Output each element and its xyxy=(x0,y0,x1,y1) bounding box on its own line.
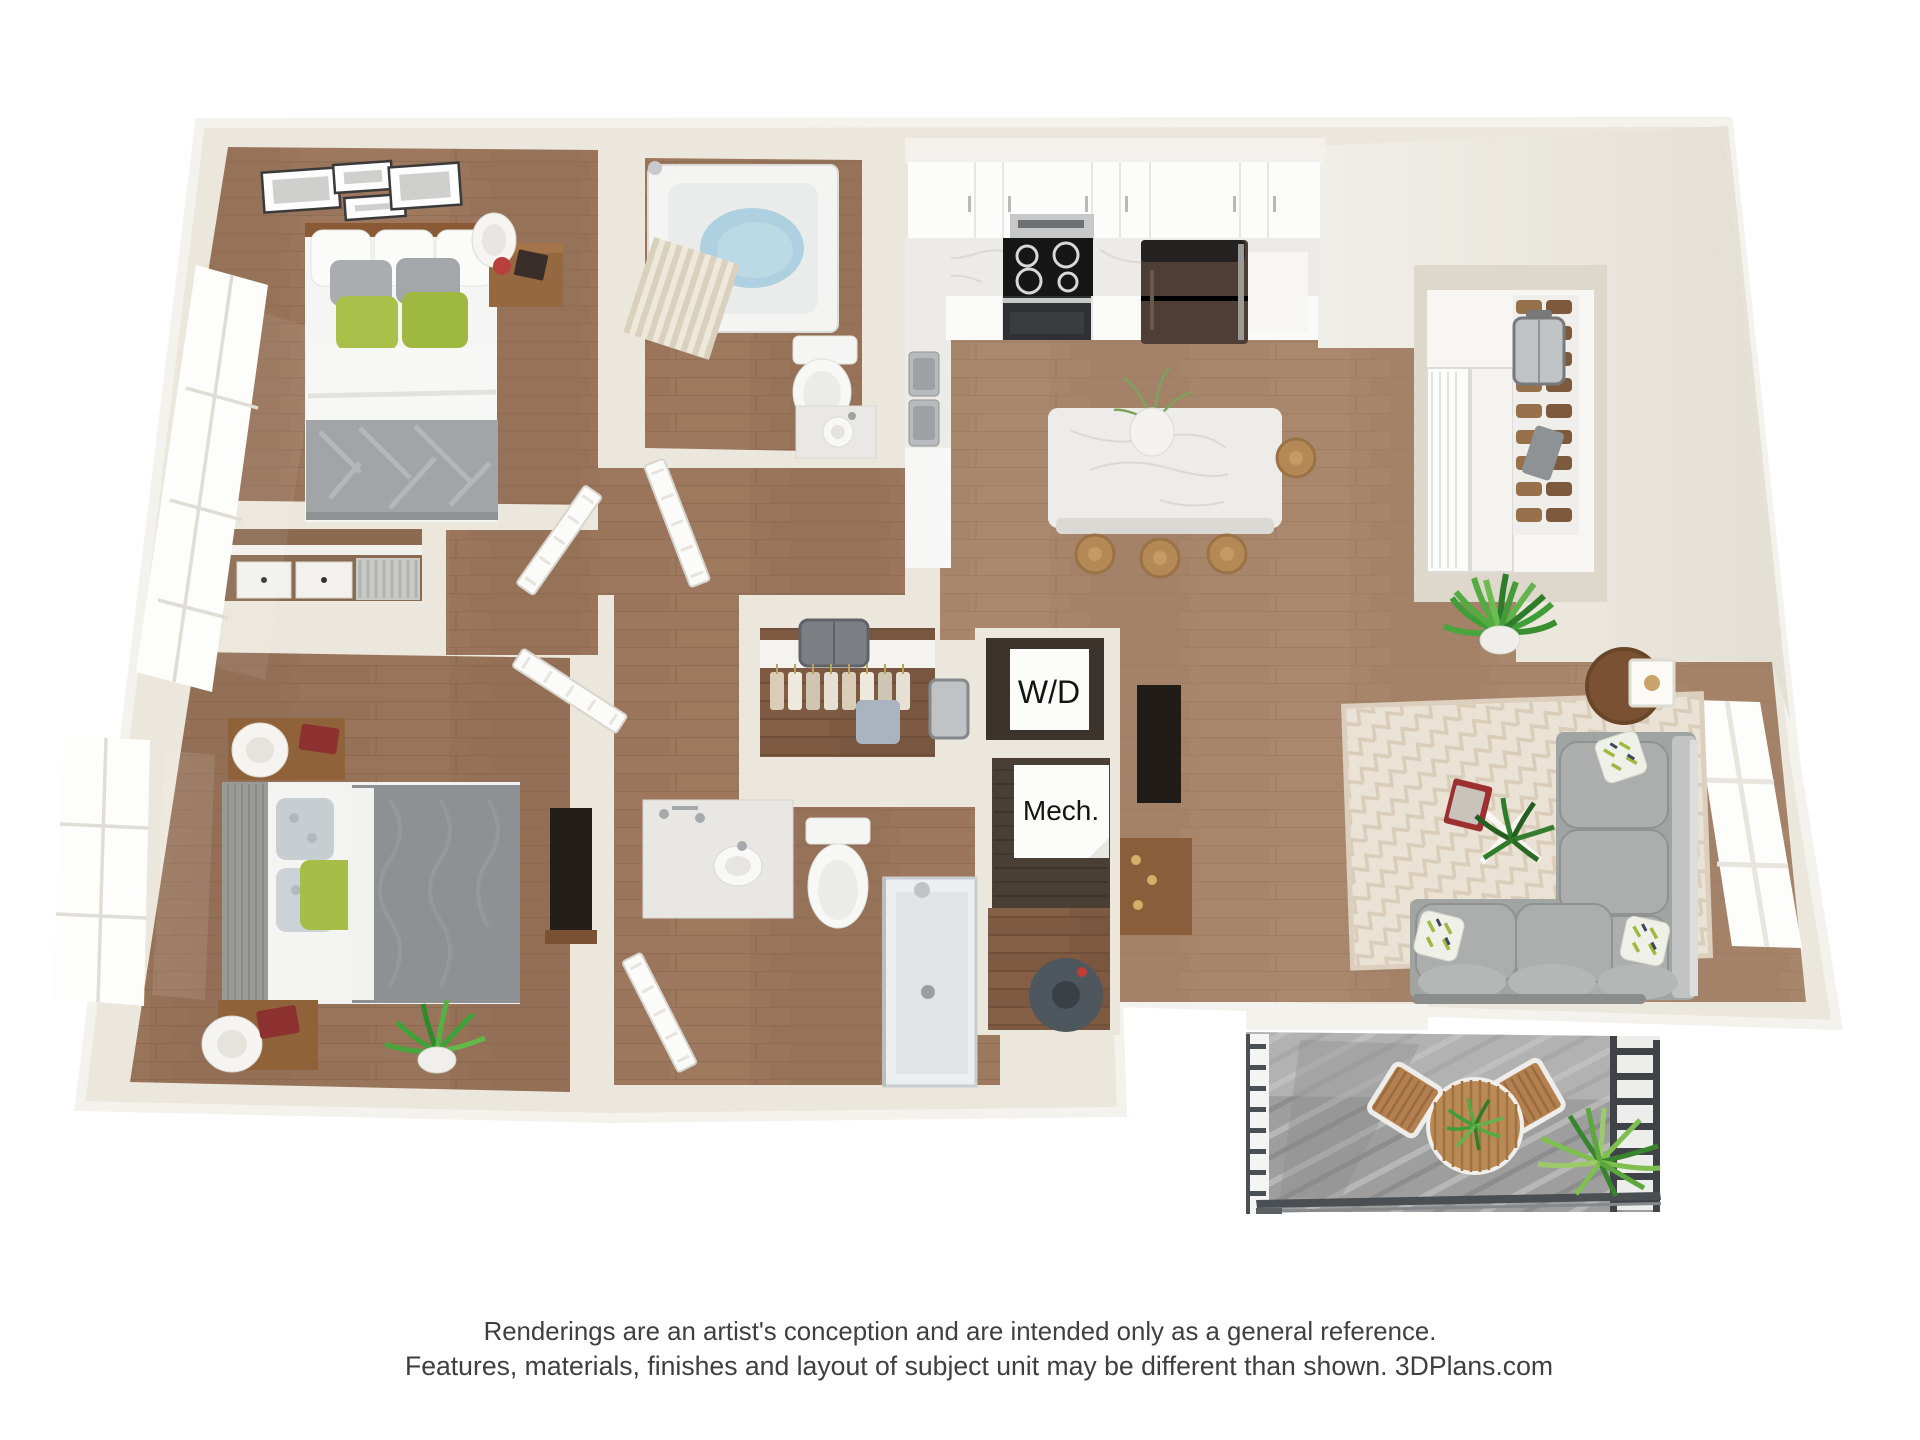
svg-text:Renderings are an artist's con: Renderings are an artist's conception an… xyxy=(484,1318,1437,1346)
svg-text:W/D: W/D xyxy=(1018,674,1080,710)
svg-text:Features, materials, finishes: Features, materials, finishes and layout… xyxy=(405,1351,1553,1381)
svg-text:Mech.: Mech. xyxy=(1023,795,1099,826)
